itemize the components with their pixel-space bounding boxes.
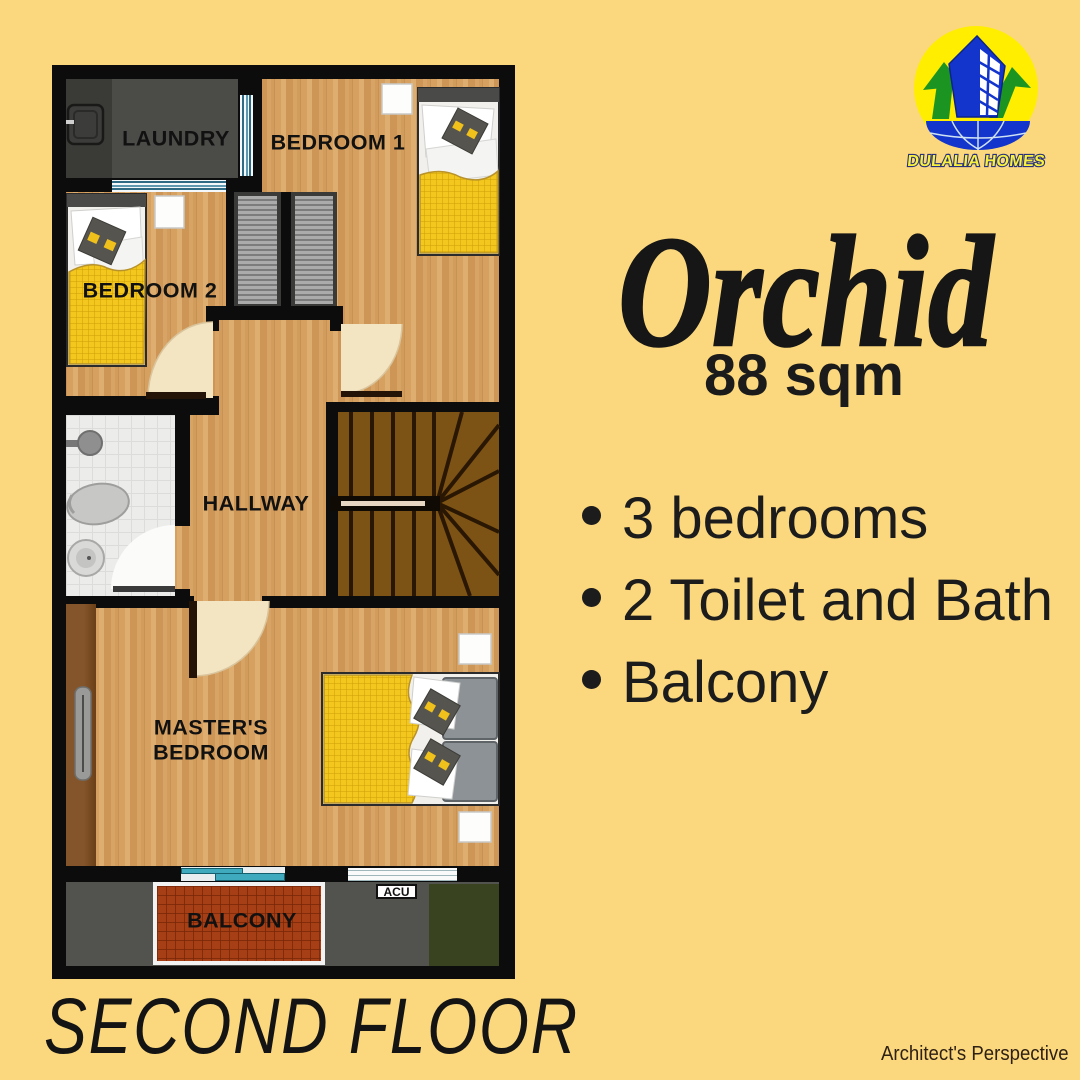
svg-text:DULALIA HOMES: DULALIA HOMES bbox=[906, 152, 1046, 170]
